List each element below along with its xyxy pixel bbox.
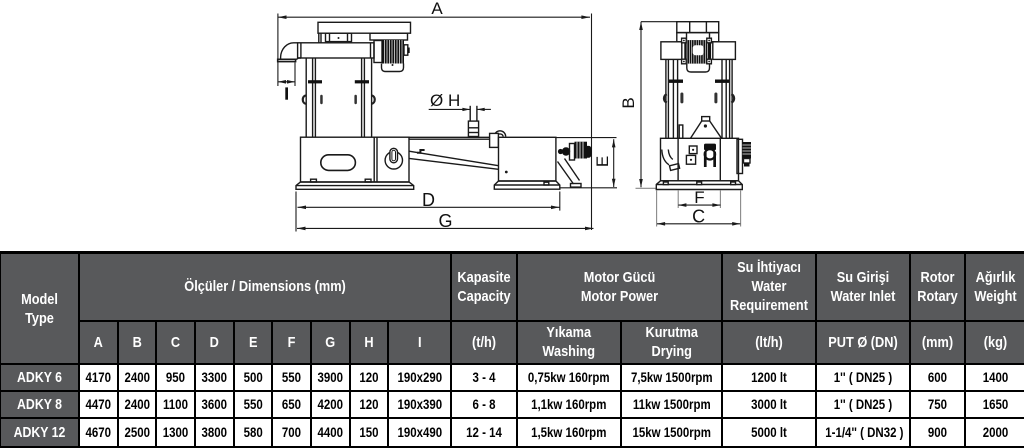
svg-text:F: F	[694, 188, 704, 207]
svg-text:Ø H: Ø H	[430, 91, 460, 110]
svg-text:B: B	[619, 97, 638, 108]
svg-text:A: A	[431, 0, 443, 18]
svg-text:D: D	[422, 190, 435, 210]
svg-text:E: E	[593, 156, 612, 167]
svg-text:C: C	[692, 207, 705, 227]
svg-text:G: G	[438, 211, 452, 231]
